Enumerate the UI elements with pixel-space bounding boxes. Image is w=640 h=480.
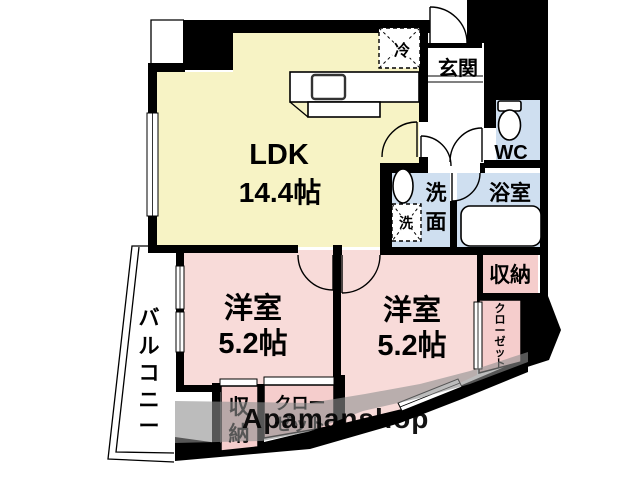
- entrance-label: 玄関: [438, 56, 478, 80]
- room-right-label: 洋室: [383, 293, 441, 327]
- toilet: [498, 101, 521, 140]
- balcony-label: バ ル コ ニ ー: [139, 307, 160, 438]
- ldk-size-label: 14.4帖: [239, 177, 322, 208]
- wall-bath-bottom: [452, 247, 548, 255]
- svg-text:ゼ: ゼ: [495, 334, 506, 348]
- storage-bottom-door: [220, 379, 257, 386]
- wall-wash-bath: [450, 201, 457, 250]
- meter-box-label-m: M: [488, 53, 501, 70]
- svg-text:コ: コ: [139, 362, 160, 385]
- washroom-label-2: 面: [426, 211, 447, 234]
- closet-right-sliding-door: [474, 302, 482, 369]
- room-left-window-a: [176, 266, 184, 309]
- wall-left-upper: [148, 63, 157, 115]
- svg-text:ル: ル: [139, 335, 160, 358]
- washbasin: [393, 169, 413, 203]
- wall-corridor-wc-a: [484, 90, 496, 128]
- wall-topleft-block: [183, 20, 233, 70]
- wall-washroom-left: [380, 163, 392, 247]
- kitchen-sink: [312, 75, 345, 99]
- closet-bottom-door: [264, 377, 334, 385]
- ldk-label: LDK: [249, 139, 309, 171]
- wall-door-post: [333, 245, 342, 255]
- wall-entrance-threshold: [428, 43, 482, 48]
- closet-right-label: ク ロ ー ゼ ッ ト: [495, 302, 506, 370]
- room-left-window-b: [176, 312, 184, 352]
- wc-door: [450, 128, 482, 162]
- svg-text:ニ: ニ: [139, 389, 160, 412]
- bathtub: [461, 206, 541, 246]
- room-right-size-label: 5.2帖: [377, 329, 446, 362]
- eave-line: [151, 20, 184, 63]
- wall-roomleft-west-a: [176, 248, 184, 267]
- ldk-window: [147, 113, 158, 216]
- svg-text:ー: ー: [139, 415, 160, 438]
- fridge-label: 冷: [394, 41, 410, 60]
- bathroom-label: 浴室: [489, 181, 531, 205]
- wall-between-rooms: [333, 255, 341, 390]
- storage-right-label: 収納: [489, 263, 531, 287]
- meter-box-label-b: B: [489, 72, 501, 89]
- wc-label: WC: [494, 142, 527, 164]
- wall-ldk-rooms: [151, 245, 298, 253]
- room-left-label: 洋室: [224, 291, 282, 325]
- watermark-text: Apamanshop: [242, 403, 429, 434]
- floorplan-svg: LDK 14.4帖 洋室 5.2帖 洋室 5.2帖 玄関 M B WC 浴室 洗…: [0, 0, 640, 480]
- wall-right-outer: [540, 90, 548, 298]
- washroom-label-1: 洗: [426, 182, 447, 205]
- washer-label: 洗: [399, 215, 413, 231]
- wall-roomright-east: [477, 250, 483, 302]
- room-left-size-label: 5.2帖: [218, 327, 287, 360]
- wall-corridor-stub-a: [413, 163, 421, 173]
- floorplan-image: LDK 14.4帖 洋室 5.2帖 洋室 5.2帖 玄関 M B WC 浴室 洗…: [0, 0, 640, 480]
- entrance-door: [430, 7, 467, 43]
- svg-text:バ: バ: [139, 307, 160, 330]
